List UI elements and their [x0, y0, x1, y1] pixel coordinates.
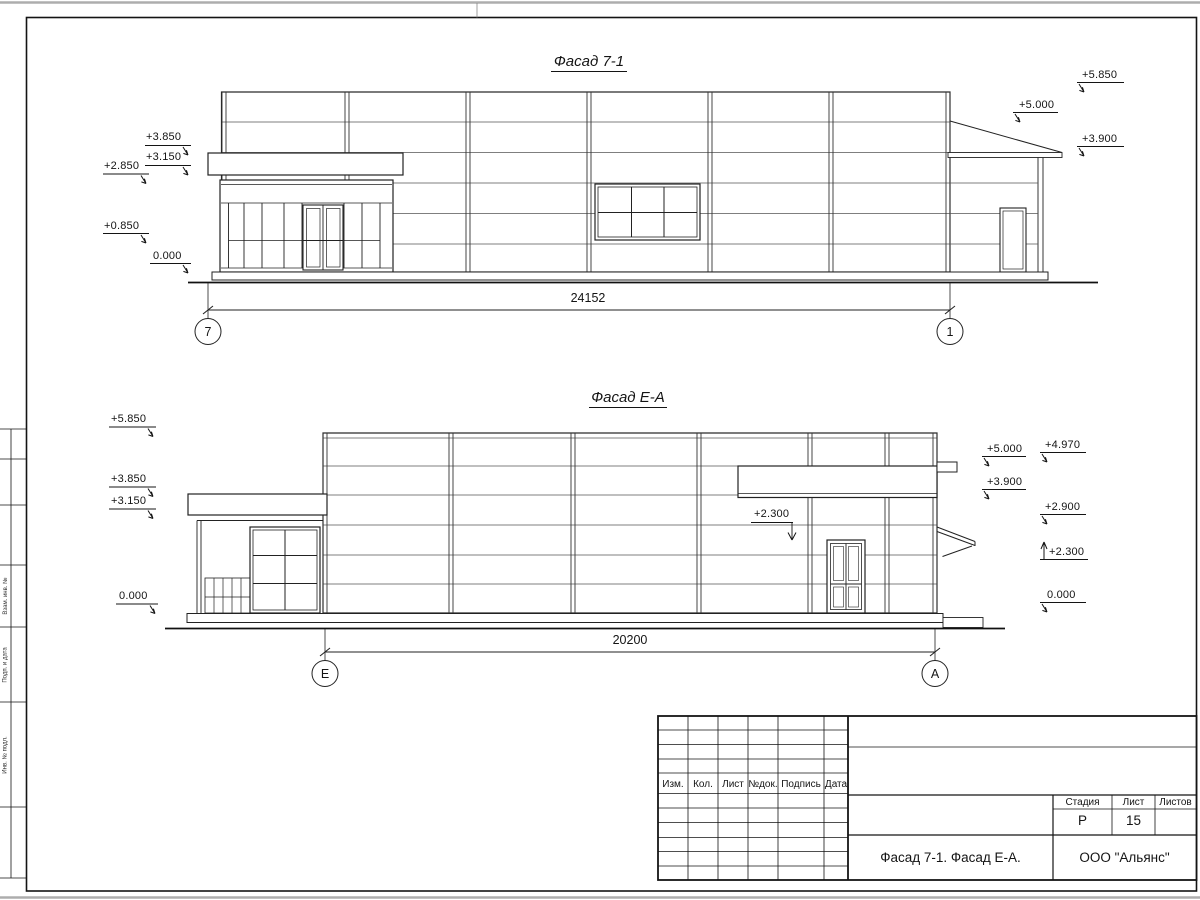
stage-label: Стадия — [1053, 797, 1112, 808]
elevation-mark: +5.000 — [987, 443, 1022, 455]
axis-label: А — [922, 667, 948, 681]
elevation-mark: +3.900 — [987, 476, 1022, 488]
sheet-label: Лист — [1112, 797, 1155, 808]
elevation-mark-leader: +2.300 — [754, 508, 789, 520]
annex-canopy — [188, 494, 327, 515]
elevation-mark: +4.970 — [1045, 439, 1080, 451]
drawing-sheet: Фасад 7-1 Фасад Е-А 24152 20200 7 1 Е А … — [0, 0, 1200, 900]
sidewalk-step — [943, 618, 983, 628]
elevation-mark: 0.000 — [119, 590, 148, 602]
sheets-label: Листов — [1155, 797, 1196, 808]
elevation-mark: +0.850 — [104, 220, 139, 232]
elevation-mark: +2.900 — [1045, 501, 1080, 513]
side-column-label: Инв. № подл. — [1, 702, 11, 807]
plinth — [212, 272, 1048, 280]
facade1-title: Фасад 7-1 — [551, 53, 627, 72]
facade-e-a-drawing — [109, 427, 1088, 687]
titleblock-col-data: Дата — [824, 779, 848, 790]
side-column-label: Подп. и дата — [1, 627, 11, 702]
elevation-mark: 0.000 — [153, 250, 182, 262]
titleblock-col-ndok: №док. — [748, 779, 778, 790]
elevation-mark: +5.850 — [111, 413, 146, 425]
facade-7-1-drawing — [103, 83, 1124, 345]
axis-label: 1 — [937, 325, 963, 339]
elevation-mark: +3.900 — [1082, 133, 1117, 145]
stage-value: Р — [1053, 813, 1112, 828]
elevation-mark: +2.850 — [104, 160, 139, 172]
entrance-canopy — [208, 153, 403, 175]
elevation-mark: +3.150 — [146, 151, 181, 163]
titleblock-col-izm: Изм. — [658, 779, 688, 790]
facade1-annex — [948, 121, 1062, 273]
side-column-label: Взам. инв. № — [1, 565, 11, 627]
entrance-storefront — [208, 153, 403, 272]
elevation-mark: +3.850 — [146, 131, 181, 143]
facade2-band — [738, 462, 957, 498]
facade2-title: Фасад Е-А — [589, 389, 667, 408]
titleblock-col-kol: Кол. — [688, 779, 718, 790]
elevation-mark: +3.150 — [111, 495, 146, 507]
elevation-mark: +5.850 — [1082, 69, 1117, 81]
side-canopy — [937, 527, 975, 557]
elevation-mark: +5.000 — [1019, 99, 1054, 111]
annex-door — [1000, 208, 1026, 272]
facade2-dimension-value: 20200 — [325, 633, 935, 647]
titleblock-col-podpis: Подпись — [778, 779, 824, 790]
annex-grille — [205, 578, 250, 613]
plinth — [187, 614, 943, 623]
facade2-annex — [188, 494, 327, 613]
axis-label: Е — [312, 667, 338, 681]
company-name: ООО "Альянс" — [1053, 850, 1196, 865]
elevation-mark: +2.300 — [1049, 546, 1084, 558]
doc-title: Фасад 7-1. Фасад Е-А. — [848, 850, 1053, 865]
elevation-mark: +3.850 — [111, 473, 146, 485]
facade1-dimension-value: 24152 — [208, 291, 968, 305]
elevation-arrow-up-icon — [1041, 542, 1047, 559]
titleblock-col-list: Лист — [718, 779, 748, 790]
sheet-number: 15 — [1112, 813, 1155, 828]
facade2-door — [827, 540, 865, 613]
elevation-mark: 0.000 — [1047, 589, 1076, 601]
facade1-window — [595, 184, 700, 240]
axis-label: 7 — [195, 325, 221, 339]
